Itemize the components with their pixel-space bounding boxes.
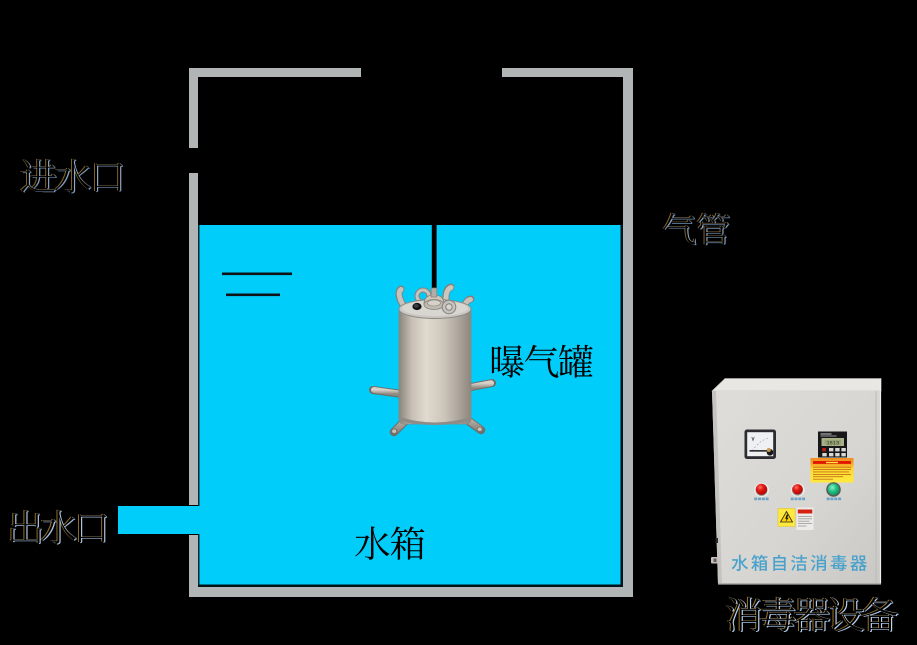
svg-text:1513: 1513 xyxy=(826,440,839,446)
